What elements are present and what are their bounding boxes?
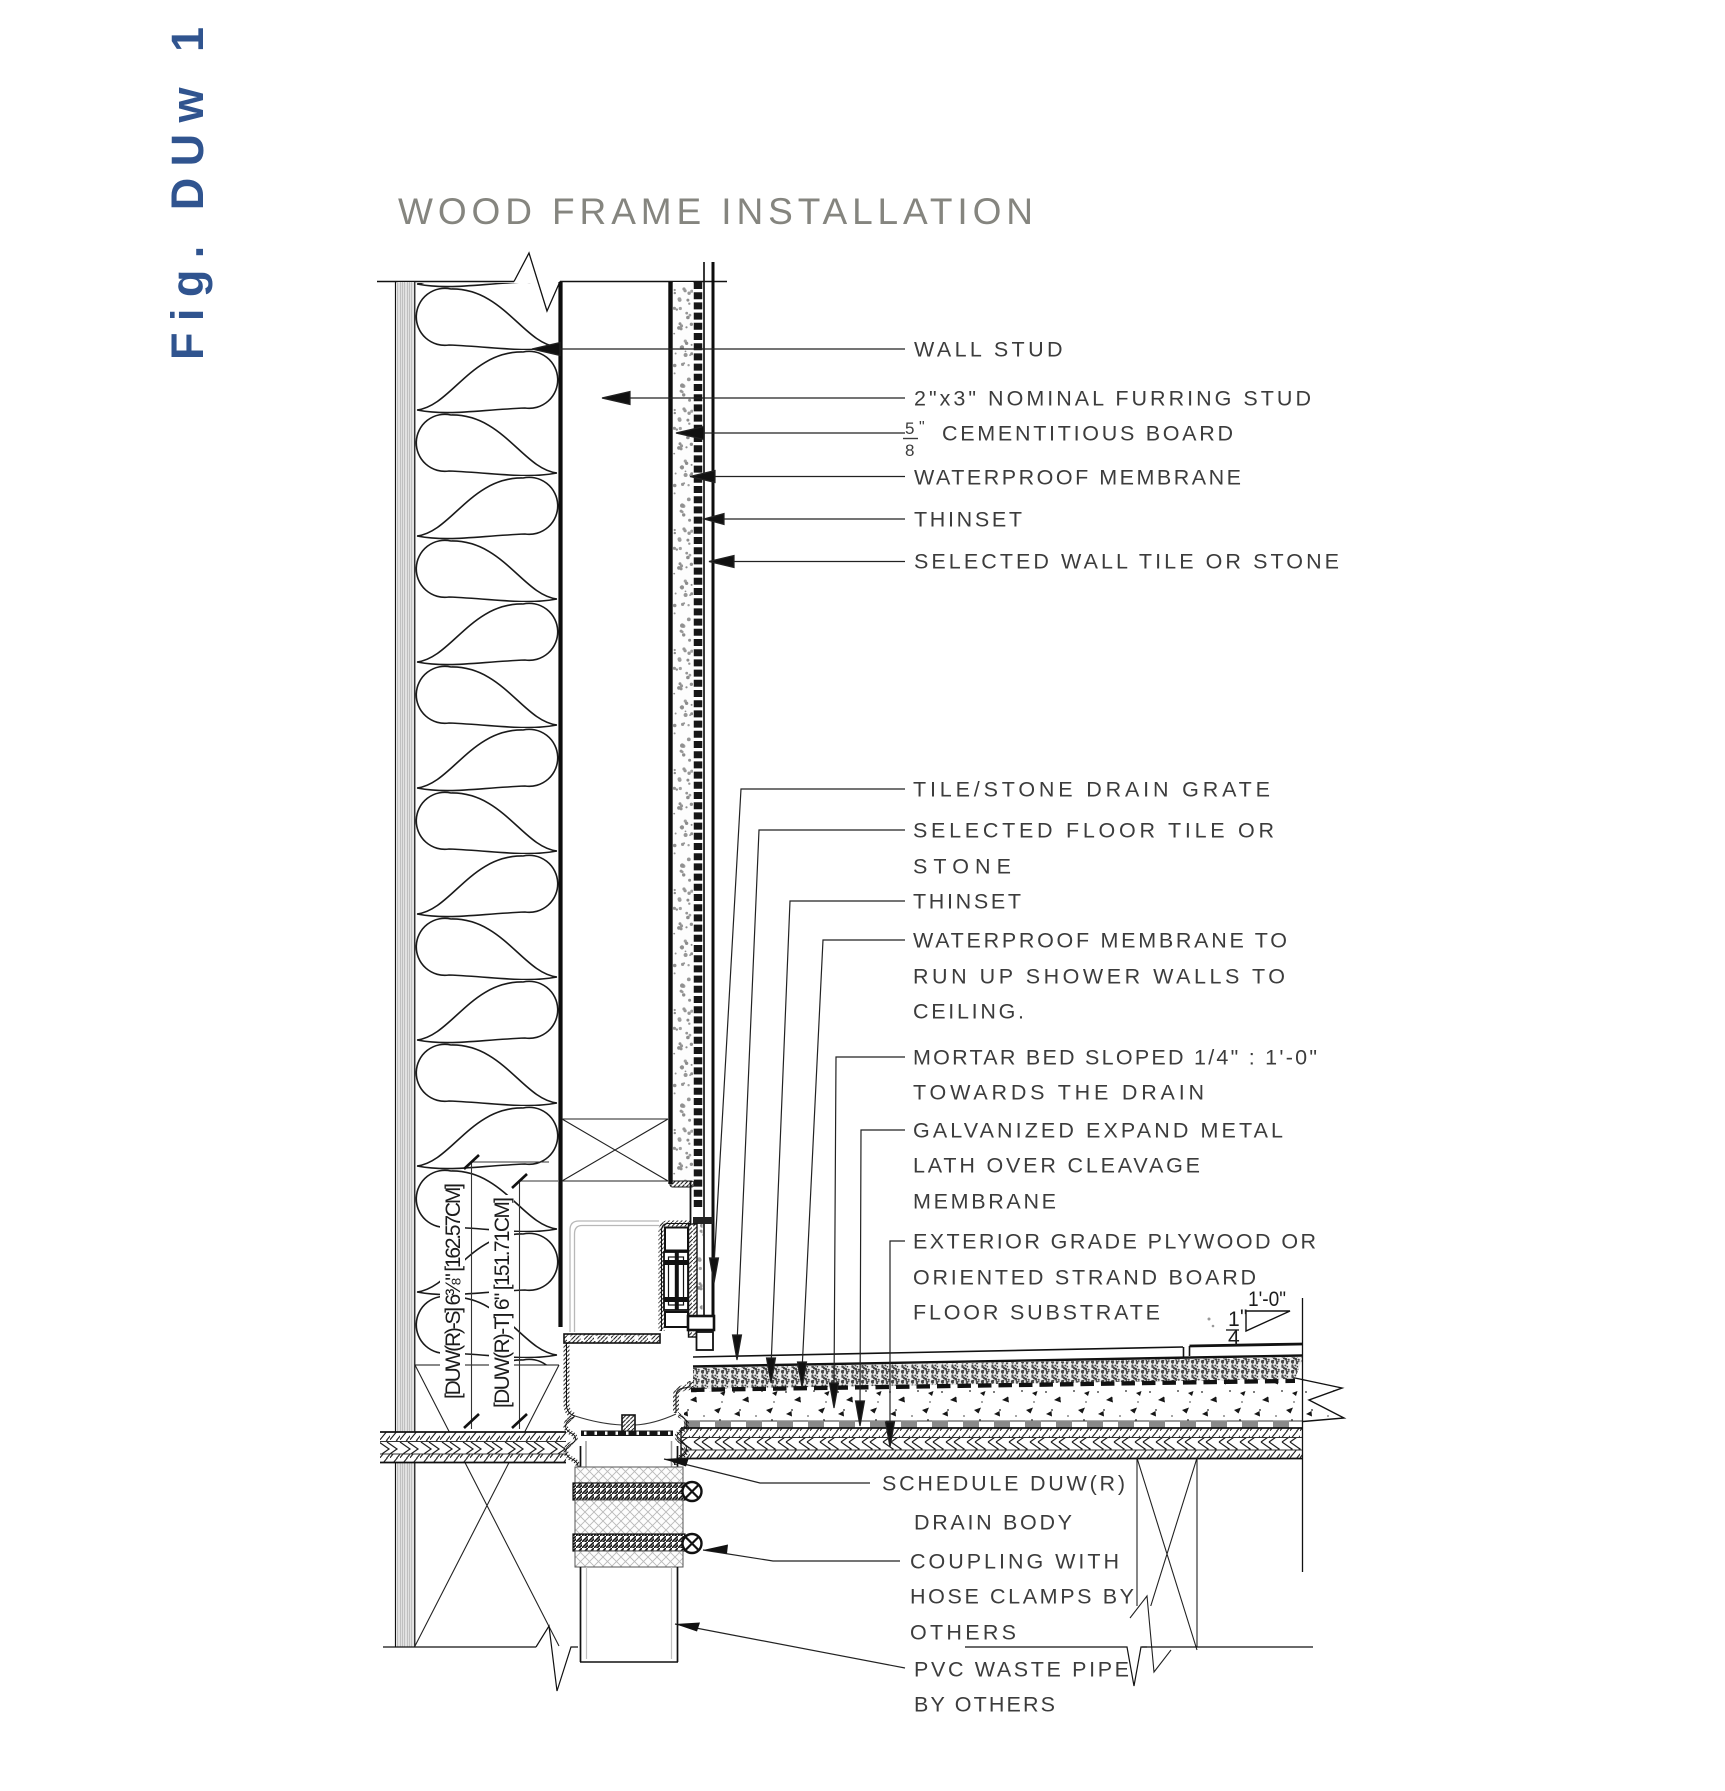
- svg-text:8: 8: [905, 441, 914, 460]
- svg-text:COUPLING WITH: COUPLING WITH: [910, 1550, 1119, 1574]
- svg-text:WOOD FRAME INSTALLATION: WOOD FRAME INSTALLATION: [398, 191, 1033, 232]
- svg-text:MORTAR BED SLOPED 1/4" : 1'-0: MORTAR BED SLOPED 1/4" : 1'-0": [913, 1046, 1317, 1070]
- svg-text:2"x3" NOMINAL FURRING STUD: 2"x3" NOMINAL FURRING STUD: [914, 387, 1311, 411]
- svg-text:MEMBRANE: MEMBRANE: [913, 1190, 1056, 1214]
- svg-text:GALVANIZED EXPAND METAL: GALVANIZED EXPAND METAL: [913, 1119, 1283, 1143]
- svg-text:": ": [1240, 1306, 1247, 1329]
- svg-text:HOSE CLAMPS BY: HOSE CLAMPS BY: [910, 1585, 1134, 1609]
- svg-text:DRAIN BODY: DRAIN BODY: [914, 1511, 1072, 1535]
- svg-text:4: 4: [1228, 1327, 1240, 1350]
- svg-text:ORIENTED STRAND BOARD: ORIENTED STRAND BOARD: [913, 1266, 1256, 1290]
- svg-text:CEMENTITIOUS BOARD: CEMENTITIOUS BOARD: [942, 422, 1233, 446]
- svg-text:TILE/STONE DRAIN GRATE: TILE/STONE DRAIN GRATE: [913, 778, 1270, 802]
- svg-text:LATH OVER CLEAVAGE: LATH OVER CLEAVAGE: [913, 1154, 1200, 1178]
- svg-text:Fig. DUw 1: Fig. DUw 1: [162, 27, 213, 360]
- svg-text:THINSET: THINSET: [913, 890, 1021, 914]
- svg-text:1'-0": 1'-0": [1248, 1288, 1286, 1311]
- svg-text:[DUW(R)-S] 6⅜" [162.57CM]: [DUW(R)-S] 6⅜" [162.57CM]: [442, 1183, 465, 1399]
- svg-text:RUN UP SHOWER WALLS TO: RUN UP SHOWER WALLS TO: [913, 965, 1285, 989]
- svg-text:SELECTED WALL TILE OR STONE: SELECTED WALL TILE OR STONE: [914, 550, 1339, 574]
- svg-text:PVC WASTE PIPE: PVC WASTE PIPE: [914, 1658, 1129, 1682]
- svg-text:BY OTHERS: BY OTHERS: [914, 1693, 1055, 1717]
- svg-text:[DUW(R)-T] 6" [151.71CM]: [DUW(R)-T] 6" [151.71CM]: [491, 1197, 514, 1408]
- svg-text:FLOOR SUBSTRATE: FLOOR SUBSTRATE: [913, 1301, 1160, 1325]
- svg-text:EXTERIOR GRADE PLYWOOD OR: EXTERIOR GRADE PLYWOOD OR: [913, 1230, 1316, 1254]
- svg-text:5: 5: [905, 419, 914, 438]
- svg-text:SCHEDULE DUW(R): SCHEDULE DUW(R): [882, 1472, 1125, 1496]
- svg-text:WATERPROOF MEMBRANE: WATERPROOF MEMBRANE: [914, 466, 1241, 490]
- svg-text:CEILING.: CEILING.: [913, 1000, 1024, 1024]
- svg-text:OTHERS: OTHERS: [910, 1621, 1016, 1645]
- svg-text:WATERPROOF MEMBRANE TO: WATERPROOF MEMBRANE TO: [913, 929, 1287, 953]
- svg-text:": ": [919, 419, 925, 436]
- svg-text:STONE: STONE: [913, 855, 1011, 879]
- svg-text:THINSET: THINSET: [914, 508, 1022, 532]
- svg-text:TOWARDS THE DRAIN: TOWARDS THE DRAIN: [913, 1081, 1204, 1105]
- svg-text:WALL STUD: WALL STUD: [914, 338, 1063, 362]
- svg-text:SELECTED FLOOR TILE OR: SELECTED FLOOR TILE OR: [913, 819, 1274, 843]
